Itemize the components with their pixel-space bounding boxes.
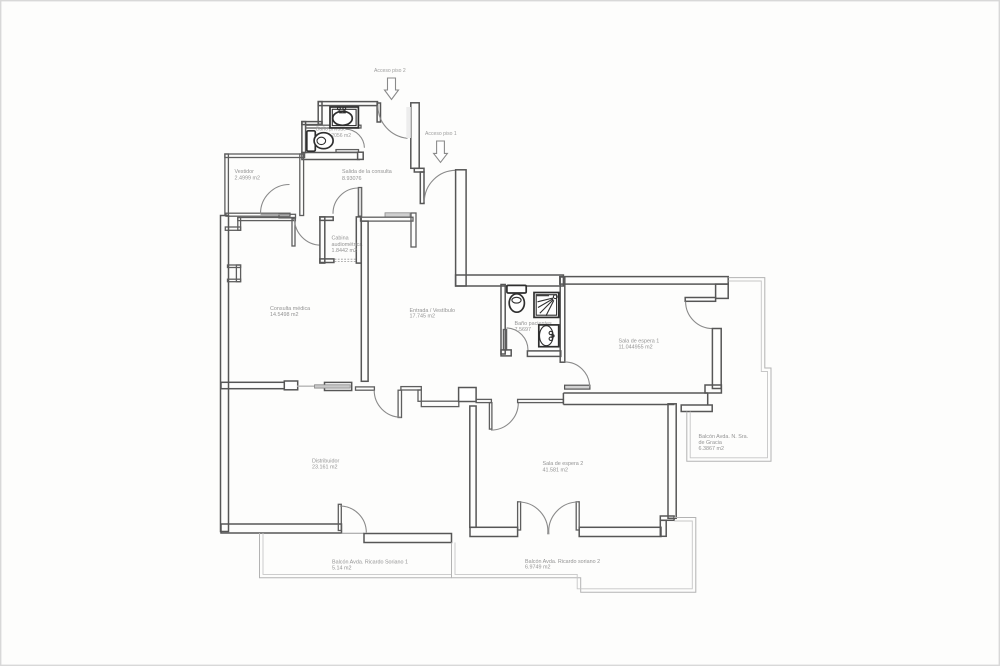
svg-text:17.745 m2: 17.745 m2 — [410, 314, 435, 320]
svg-text:Sala de espera 2: Sala de espera 2 — [543, 461, 584, 467]
svg-text:Acceso piso 1: Acceso piso 1 — [425, 131, 457, 137]
svg-text:de Gracia: de Gracia — [699, 440, 722, 446]
svg-text:6.3867 m2: 6.3867 m2 — [699, 446, 724, 452]
svg-text:6.9749 m2: 6.9749 m2 — [525, 565, 550, 571]
svg-text:7.5697: 7.5697 — [515, 327, 532, 333]
svg-text:audiométrica: audiométrica — [332, 242, 363, 248]
svg-text:Salida de la consulta: Salida de la consulta — [342, 169, 392, 175]
svg-text:23.161 m2: 23.161 m2 — [312, 465, 337, 471]
svg-text:Balcón Avda. N. Sra.: Balcón Avda. N. Sra. — [699, 434, 749, 440]
svg-text:Cabina: Cabina — [332, 236, 349, 242]
svg-text:Acceso piso 2: Acceso piso 2 — [374, 68, 406, 74]
svg-text:2.4999 m2: 2.4999 m2 — [235, 176, 260, 182]
svg-text:8.93076: 8.93076 — [342, 176, 362, 182]
svg-text:5.14 m2: 5.14 m2 — [332, 566, 351, 572]
svg-text:41.581 m2: 41.581 m2 — [543, 467, 568, 473]
svg-text:Vestidor: Vestidor — [235, 169, 255, 175]
svg-text:14.5498 m2: 14.5498 m2 — [270, 312, 298, 318]
svg-text:11.044955 m2: 11.044955 m2 — [619, 345, 653, 351]
svg-text:1.8442 m2: 1.8442 m2 — [332, 248, 357, 254]
